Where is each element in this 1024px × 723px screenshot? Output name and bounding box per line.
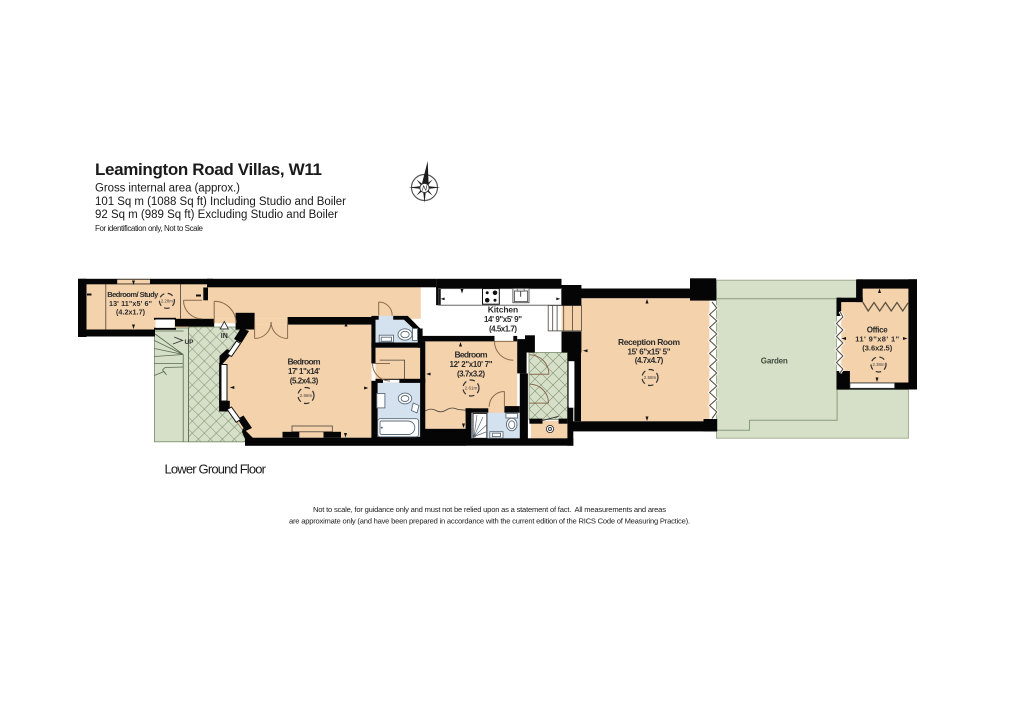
svg-text:2.68m: 2.68m: [300, 393, 313, 398]
svg-text:(4.5x1.7): (4.5x1.7): [489, 325, 517, 334]
svg-text:Not to scale, for guidance onl: Not to scale, for guidance only and must…: [313, 505, 666, 514]
svg-text:Bedroom: Bedroom: [455, 350, 488, 360]
svg-text:2.58m: 2.58m: [644, 375, 657, 380]
svg-text:Office: Office: [867, 326, 889, 335]
svg-text:(5.2x4.3): (5.2x4.3): [290, 377, 319, 386]
svg-text:101 Sq m (1088 Sq ft) Includin: 101 Sq m (1088 Sq ft) Including Studio a…: [95, 196, 346, 208]
svg-text:11' 9"x8' 1": 11' 9"x8' 1": [855, 335, 899, 344]
svg-text:For identification only, Not t: For identification only, Not to Scale: [95, 224, 204, 233]
svg-text:17' 1"x14': 17' 1"x14': [288, 367, 320, 376]
svg-text:12' 2"x10' 7": 12' 2"x10' 7": [450, 360, 493, 369]
svg-text:Bedroom/ Study: Bedroom/ Study: [107, 290, 159, 299]
svg-text:(4.7x4.7): (4.7x4.7): [635, 356, 664, 365]
svg-text:Bedroom: Bedroom: [288, 357, 321, 367]
svg-text:UP: UP: [184, 339, 194, 346]
svg-text:are approximate only (and have: are approximate only (and have been prep…: [289, 517, 690, 526]
svg-text:92 Sq m (989 Sq ft) Excluding: 92 Sq m (989 Sq ft) Excluding Studio and…: [95, 209, 338, 221]
svg-text:(3.7x3.2): (3.7x3.2): [457, 370, 485, 379]
svg-text:(3.6x2.5): (3.6x2.5): [862, 344, 893, 353]
svg-text:Leamington Road Villas, W11: Leamington Road Villas, W11: [95, 160, 322, 179]
svg-text:Garden: Garden: [761, 357, 788, 366]
svg-text:Kitchen: Kitchen: [488, 305, 519, 315]
svg-text:2.61m: 2.61m: [465, 386, 478, 391]
svg-text:2.28m: 2.28m: [161, 298, 173, 303]
svg-text:(4.2x1.7): (4.2x1.7): [116, 308, 146, 317]
svg-text:IN: IN: [221, 333, 228, 340]
svg-text:14' 9"x5' 9": 14' 9"x5' 9": [484, 315, 522, 324]
svg-text:2.38m: 2.38m: [873, 362, 885, 367]
svg-text:Reception Room: Reception Room: [618, 337, 680, 347]
svg-text:Gross internal area (approx.): Gross internal area (approx.): [95, 183, 240, 195]
svg-text:Lower Ground Floor: Lower Ground Floor: [165, 462, 267, 477]
